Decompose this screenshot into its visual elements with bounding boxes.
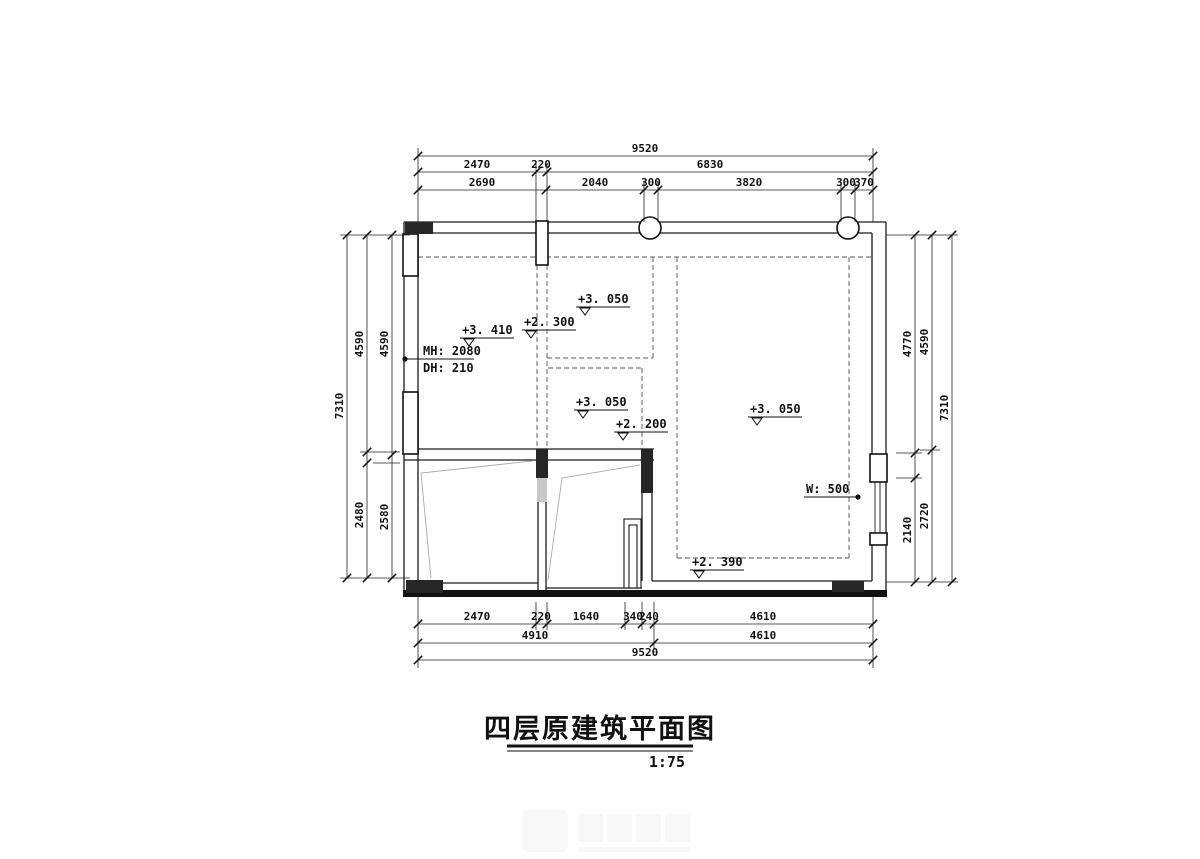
right-window-jamb-top	[870, 454, 887, 482]
door-height-note: MH: 2080	[423, 344, 481, 358]
walls	[404, 222, 886, 597]
round-column-right	[837, 217, 859, 239]
dim-top: 370	[854, 176, 874, 189]
window-width-note: W: 500	[806, 482, 849, 496]
left-window-jamb-bottom	[403, 392, 418, 454]
dim-top: 300	[641, 176, 661, 189]
dim-top: 2040	[582, 176, 609, 189]
flue-shaft	[624, 519, 641, 588]
right-window-jamb-bottom	[870, 533, 887, 545]
svg-text:+3. 050: +3. 050	[578, 292, 629, 306]
dim-left: 2580	[378, 504, 391, 531]
dim-bottom: 220	[531, 610, 551, 623]
dim-top-overall: 9520	[632, 142, 659, 155]
door-threshold	[537, 478, 547, 502]
level-mark: +3. 050	[748, 402, 802, 425]
dim-bottom: 1640	[573, 610, 600, 623]
dim-left-overall: 7310	[333, 393, 346, 420]
svg-text:+2. 200: +2. 200	[616, 417, 667, 431]
floor-plan-page: 9520 2470 220 6830 2690 2040 300 3820 30…	[0, 0, 1200, 859]
right-window-glazing	[875, 482, 880, 533]
dim-bottom: 4910	[522, 629, 549, 642]
dim-top: 2470	[464, 158, 491, 171]
dim-right: 4770	[901, 331, 914, 358]
level-mark: +3. 050	[574, 395, 628, 418]
level-mark: +3. 050	[576, 292, 630, 315]
bottom-exterior-wall	[403, 590, 887, 597]
dashed-overhead-lines	[418, 257, 872, 558]
door-sill-note: DH: 210	[423, 361, 474, 375]
watermark	[522, 810, 690, 852]
dim-right: 2720	[918, 503, 931, 530]
top-wall-pier	[536, 221, 548, 265]
dim-left: 4590	[378, 331, 391, 358]
dim-left: 4590	[353, 331, 366, 358]
dim-top: 3820	[736, 176, 763, 189]
svg-text:+2. 300: +2. 300	[524, 315, 575, 329]
dim-bottom-overall: 9520	[632, 646, 659, 659]
window-annotation: W: 500	[804, 482, 861, 500]
dim-top: 2690	[469, 176, 496, 189]
bottom-dimension-texts: 2470 220 1640 340 240 4610 4910 4610 952…	[464, 610, 777, 659]
dim-right: 2140	[901, 517, 914, 544]
floor-plan-drawing: 9520 2470 220 6830 2690 2040 300 3820 30…	[0, 0, 1200, 859]
level-mark: +2. 200	[614, 417, 668, 440]
dim-right: 4590	[918, 329, 931, 356]
svg-text:+3. 410: +3. 410	[462, 323, 513, 337]
dim-left: 2480	[353, 502, 366, 529]
left-window-jamb-top	[403, 234, 418, 276]
svg-text:+3. 050: +3. 050	[576, 395, 627, 409]
right-dimension-texts: 4770 2140 4590 2720 7310	[901, 329, 951, 544]
dim-bottom: 4610	[750, 610, 777, 623]
dim-top: 6830	[697, 158, 724, 171]
dim-bottom: 2470	[464, 610, 491, 623]
level-mark: +2. 300	[522, 315, 576, 338]
slope-projection-lines	[421, 461, 640, 580]
drawing-scale: 1:75	[649, 753, 685, 771]
dim-bottom: 4610	[750, 629, 777, 642]
dim-right-overall: 7310	[938, 395, 951, 422]
top-dimension-texts: 9520 2470 220 6830 2690 2040 300 3820 30…	[464, 142, 874, 189]
drawing-title: 四层原建筑平面图	[484, 713, 716, 745]
dim-top: 220	[531, 158, 551, 171]
left-dimension-texts: 7310 4590 2480 4590 2580	[333, 331, 391, 531]
door-annotation: MH: 2080 DH: 210	[402, 344, 480, 375]
dim-top: 300	[836, 176, 856, 189]
dim-bottom: 240	[639, 610, 659, 623]
title-block: 四层原建筑平面图 1:75	[484, 713, 716, 771]
svg-text:+2. 390: +2. 390	[692, 555, 743, 569]
level-mark: +3. 410	[460, 323, 514, 346]
svg-text:+3. 050: +3. 050	[750, 402, 801, 416]
level-mark: +2. 390	[690, 555, 744, 578]
